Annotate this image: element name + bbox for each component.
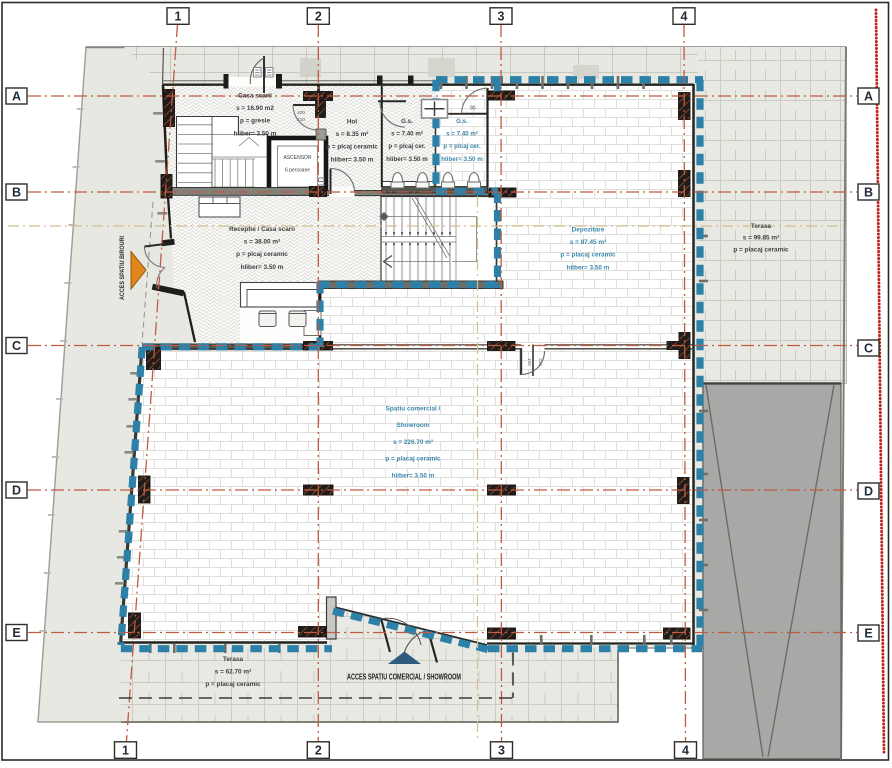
svg-text:100: 100	[297, 110, 305, 116]
svg-text:s = 87.45 m²: s = 87.45 m²	[570, 239, 606, 246]
svg-text:s = 16.90 m2: s = 16.90 m2	[236, 105, 274, 112]
svg-text:ASCENSOR: ASCENSOR	[283, 155, 311, 161]
svg-text:p = plcaj ceramic: p = plcaj ceramic	[326, 144, 378, 151]
svg-text:Spatiu comercial /: Spatiu comercial /	[386, 406, 441, 413]
svg-text:D: D	[12, 483, 21, 497]
svg-text:p = placaj ceramic: p = placaj ceramic	[205, 681, 261, 688]
svg-text:Receptie / Casa scarii: Receptie / Casa scarii	[229, 226, 295, 233]
svg-text:p = plcaj cer.: p = plcaj cer.	[443, 143, 481, 150]
svg-text:hliber= 3.50 m: hliber= 3.50 m	[386, 156, 428, 163]
svg-text:p = placaj ceramic: p = placaj ceramic	[385, 456, 441, 463]
svg-text:Casa scarii: Casa scarii	[238, 93, 272, 100]
svg-text:2: 2	[315, 9, 322, 23]
svg-text:hliber= 3.50 m: hliber= 3.50 m	[441, 156, 483, 163]
svg-text:4: 4	[682, 743, 689, 757]
svg-text:hliber= 3.50 m: hliber= 3.50 m	[567, 264, 610, 271]
svg-text:p = plcaj ceramic: p = plcaj ceramic	[236, 251, 288, 258]
svg-text:4: 4	[681, 9, 688, 23]
svg-text:ACCES SPATIU COMERCIAL / SHOWR: ACCES SPATIU COMERCIAL / SHOWROOM	[347, 673, 461, 682]
svg-text:s = 99.85 m²: s = 99.85 m²	[743, 235, 779, 242]
svg-text:3: 3	[498, 9, 505, 23]
svg-text:90: 90	[470, 106, 476, 112]
svg-text:A: A	[12, 89, 21, 103]
svg-text:3: 3	[498, 743, 505, 757]
svg-text:Hol: Hol	[347, 119, 358, 126]
svg-text:hliber= 3.50 m: hliber= 3.50 m	[241, 264, 284, 271]
svg-text:s = 8.35 m²: s = 8.35 m²	[336, 131, 369, 138]
svg-text:s = 7.40 m²: s = 7.40 m²	[446, 131, 478, 138]
svg-text:s = 38.00 m²: s = 38.00 m²	[244, 239, 280, 246]
svg-text:p = plcaj cer.: p = plcaj cer.	[388, 143, 426, 150]
svg-text:1: 1	[122, 743, 129, 757]
svg-text:s = 62.70 m²: s = 62.70 m²	[215, 669, 251, 676]
svg-text:ACCES SPATIU BIROURI: ACCES SPATIU BIROURI	[119, 236, 126, 300]
svg-text:G.s.: G.s.	[401, 118, 413, 125]
svg-text:B: B	[12, 185, 21, 199]
svg-text:hliber= 3.50 m: hliber= 3.50 m	[392, 472, 435, 479]
svg-text:1: 1	[175, 9, 182, 23]
svg-text:Depozitare: Depozitare	[572, 227, 605, 234]
svg-text:B: B	[864, 185, 873, 199]
svg-text:6 persoane: 6 persoane	[285, 168, 310, 174]
svg-text:E: E	[864, 626, 872, 640]
svg-text:2: 2	[315, 743, 322, 757]
svg-text:Showroom: Showroom	[396, 422, 429, 429]
svg-text:E: E	[12, 626, 20, 640]
svg-text:hliber= 3.50 m: hliber= 3.50 m	[234, 130, 277, 137]
svg-text:Terasa: Terasa	[223, 656, 244, 663]
svg-text:s = 7.40 m²: s = 7.40 m²	[391, 131, 423, 138]
svg-text:C: C	[864, 341, 873, 355]
svg-text:C: C	[12, 339, 21, 353]
svg-text:210: 210	[538, 358, 543, 366]
svg-text:D: D	[864, 484, 873, 498]
svg-text:p = placaj ceramic: p = placaj ceramic	[733, 246, 789, 253]
svg-text:Terasa: Terasa	[751, 223, 772, 230]
svg-text:G.s.: G.s.	[456, 118, 468, 125]
svg-text:p = placaj ceramic: p = placaj ceramic	[560, 252, 616, 259]
svg-text:A: A	[864, 89, 873, 103]
svg-text:s = 226.70 m²: s = 226.70 m²	[393, 439, 433, 446]
svg-text:100: 100	[527, 358, 532, 366]
svg-text:210: 210	[297, 117, 305, 123]
svg-text:hliber= 3.50 m: hliber= 3.50 m	[331, 156, 374, 163]
svg-text:p = gresie: p = gresie	[240, 118, 270, 125]
